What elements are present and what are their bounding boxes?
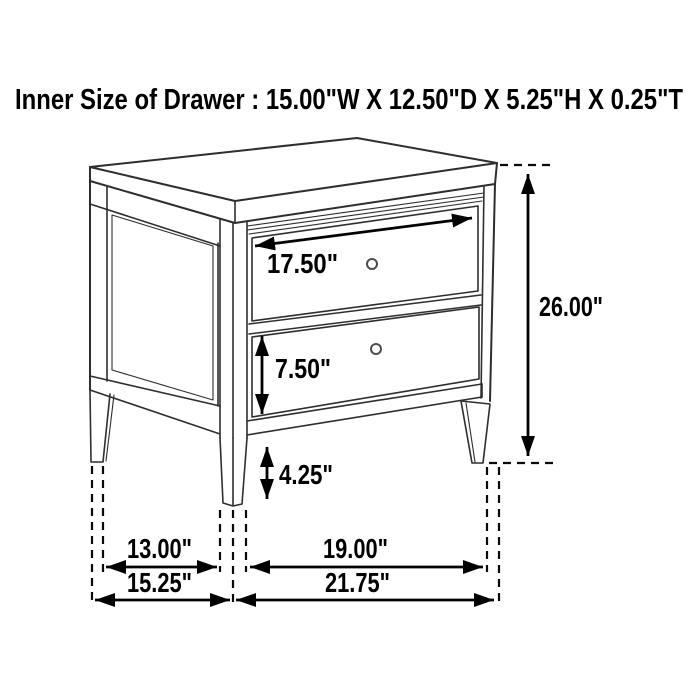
right-inner-edge: [481, 186, 484, 398]
dimension-overall-height: 26.00": [528, 174, 603, 456]
dimension-label-side-leg-spacing: 13.00": [127, 533, 192, 564]
furniture-dimension-diagram: Inner Size of Drawer : 15.00"W X 12.50"D…: [0, 0, 700, 700]
side-top-rail-bottom-edge: [90, 204, 220, 246]
tabletop-top-face: [90, 138, 497, 201]
top-drawer-knob: [367, 259, 377, 269]
right-outer-edge: [490, 184, 495, 401]
bottom-drawer-knob: [371, 344, 381, 354]
back-left-leg: [90, 390, 114, 462]
dimension-label-bottom-clearance: 4.25": [279, 459, 333, 490]
front-right-leg: [461, 401, 490, 463]
diagram-title: Inner Size of Drawer : 15.00"W X 12.50"D…: [15, 84, 683, 116]
dimension-side-leg-spacing: 13.00": [106, 533, 217, 567]
nightstand-line-drawing: [90, 138, 497, 506]
dimension-label-overall-depth: 15.25": [127, 567, 192, 598]
dimension-label-drawer-front-height: 7.50": [275, 353, 331, 384]
front-right-leg-outline: [461, 401, 490, 463]
dimension-label-overall-width: 21.75": [325, 567, 390, 598]
dimension-overall-depth: 15.25": [95, 567, 230, 600]
dimension-front-leg-spacing: 19.00": [250, 533, 483, 567]
dimension-label-drawer-width: 17.50": [267, 248, 338, 279]
dimension-label-front-leg-spacing: 19.00": [323, 533, 388, 564]
front-left-leg: [220, 438, 247, 506]
dimension-label-overall-height: 26.00": [539, 291, 603, 322]
dimension-bottom-clearance: 4.25": [267, 447, 333, 499]
dimension-overall-width: 21.75": [236, 567, 494, 600]
front-left-corner-post: [220, 219, 247, 438]
tabletop: [90, 138, 497, 223]
side-recessed-panel-bevel: [112, 215, 213, 400]
screenshot-root: Inner Size of Drawer : 15.00"W X 12.50"D…: [0, 0, 700, 700]
right-side-edge: [481, 184, 495, 401]
